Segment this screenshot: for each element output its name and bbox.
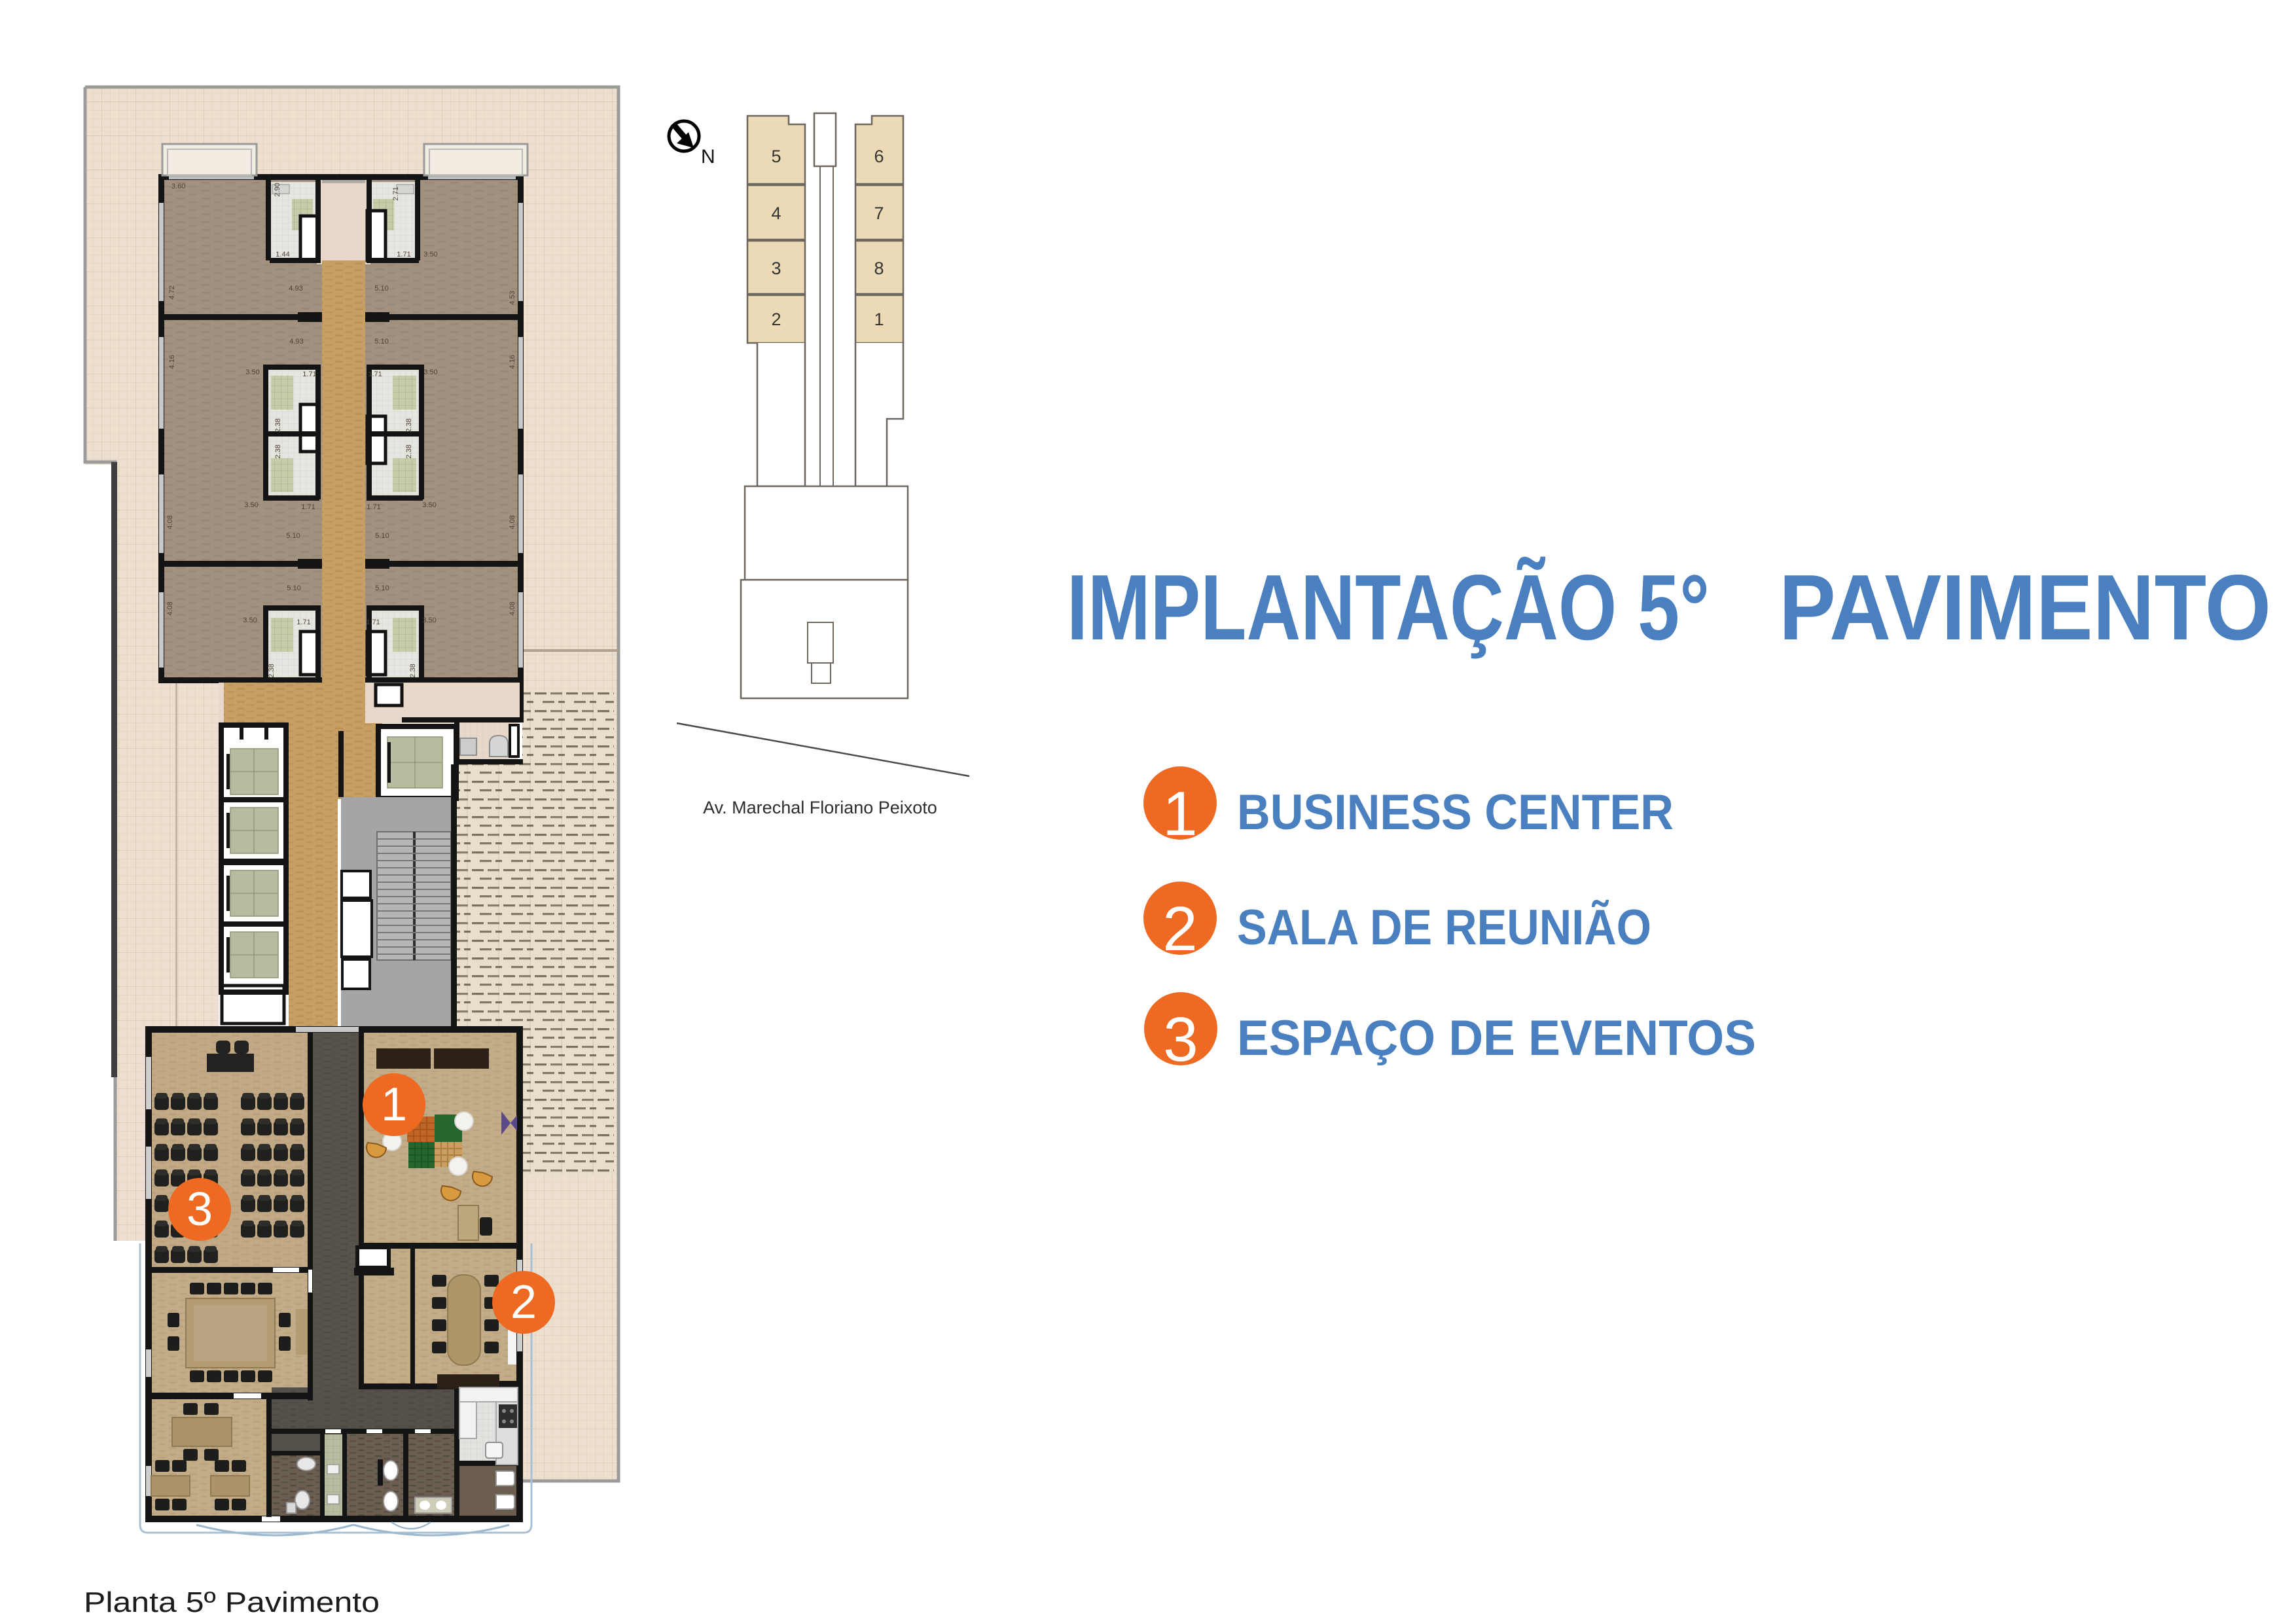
svg-text:4.08: 4.08 xyxy=(166,601,174,615)
svg-text:1: 1 xyxy=(874,310,884,329)
svg-text:4.16: 4.16 xyxy=(168,355,176,368)
svg-text:1.71: 1.71 xyxy=(367,503,380,511)
svg-text:SALA DE REUNIÃO: SALA DE REUNIÃO xyxy=(1237,900,1651,955)
svg-text:PAVIMENTO: PAVIMENTO xyxy=(1779,556,2271,660)
svg-text:5.10: 5.10 xyxy=(286,532,300,540)
svg-text:3.50: 3.50 xyxy=(423,251,437,259)
svg-text:5.10: 5.10 xyxy=(374,338,388,346)
svg-text:4.08: 4.08 xyxy=(166,515,174,529)
svg-text:3.50: 3.50 xyxy=(422,501,436,509)
svg-text:1: 1 xyxy=(1162,779,1197,849)
svg-text:1.71: 1.71 xyxy=(366,618,380,626)
svg-text:1.71: 1.71 xyxy=(296,618,310,626)
svg-text:1.71: 1.71 xyxy=(397,251,410,259)
svg-text:BUSINESS CENTER: BUSINESS CENTER xyxy=(1237,785,1674,840)
svg-text:2.38: 2.38 xyxy=(405,444,413,458)
svg-text:3.50: 3.50 xyxy=(423,368,437,376)
svg-text:IMPLANTAÇÃO 5°: IMPLANTAÇÃO 5° xyxy=(1067,556,1710,660)
svg-text:5.10: 5.10 xyxy=(375,584,389,592)
svg-text:5.10: 5.10 xyxy=(375,532,389,540)
svg-text:8: 8 xyxy=(874,259,884,278)
svg-text:Planta 5º Pavimento: Planta 5º Pavimento xyxy=(84,1586,380,1618)
svg-text:2.38: 2.38 xyxy=(268,664,276,677)
svg-text:5: 5 xyxy=(771,147,781,166)
svg-text:N: N xyxy=(701,146,715,168)
svg-text:4.93: 4.93 xyxy=(289,285,302,293)
svg-text:7: 7 xyxy=(874,204,884,223)
svg-text:2: 2 xyxy=(771,310,781,329)
svg-text:1.71: 1.71 xyxy=(301,503,315,511)
svg-text:ESPAÇO DE EVENTOS: ESPAÇO DE EVENTOS xyxy=(1237,1010,1756,1066)
svg-text:3: 3 xyxy=(771,259,781,278)
svg-text:2.90: 2.90 xyxy=(274,183,281,196)
svg-text:3.50: 3.50 xyxy=(245,368,259,376)
svg-text:1.71: 1.71 xyxy=(368,370,382,378)
svg-text:Av. Marechal Floriano Peixoto: Av. Marechal Floriano Peixoto xyxy=(703,798,937,817)
svg-text:2: 2 xyxy=(1162,894,1197,964)
svg-text:4.72: 4.72 xyxy=(168,285,176,299)
svg-text:4.93: 4.93 xyxy=(289,338,303,346)
svg-text:4.08: 4.08 xyxy=(509,601,516,615)
svg-text:2.38: 2.38 xyxy=(274,444,282,458)
svg-text:4.53: 4.53 xyxy=(509,291,516,304)
svg-text:3.50: 3.50 xyxy=(422,616,436,624)
svg-text:2: 2 xyxy=(511,1276,537,1329)
svg-text:2.38: 2.38 xyxy=(405,418,413,432)
svg-text:1.71: 1.71 xyxy=(302,370,316,378)
svg-text:4: 4 xyxy=(771,204,781,223)
svg-text:1.44: 1.44 xyxy=(276,251,289,259)
svg-text:3.50: 3.50 xyxy=(243,616,257,624)
svg-text:3.50: 3.50 xyxy=(244,501,258,509)
svg-text:2.71: 2.71 xyxy=(392,187,400,200)
svg-text:5.10: 5.10 xyxy=(374,285,388,293)
svg-text:4.08: 4.08 xyxy=(509,515,516,529)
svg-text:3: 3 xyxy=(187,1183,213,1236)
svg-text:4.16: 4.16 xyxy=(509,355,516,368)
svg-text:1: 1 xyxy=(381,1079,407,1131)
svg-text:3.60: 3.60 xyxy=(171,183,185,190)
svg-text:6: 6 xyxy=(874,147,884,166)
svg-text:5.10: 5.10 xyxy=(287,584,300,592)
svg-text:3: 3 xyxy=(1163,1005,1198,1075)
svg-text:2.38: 2.38 xyxy=(274,418,282,432)
svg-text:2.38: 2.38 xyxy=(409,664,417,677)
